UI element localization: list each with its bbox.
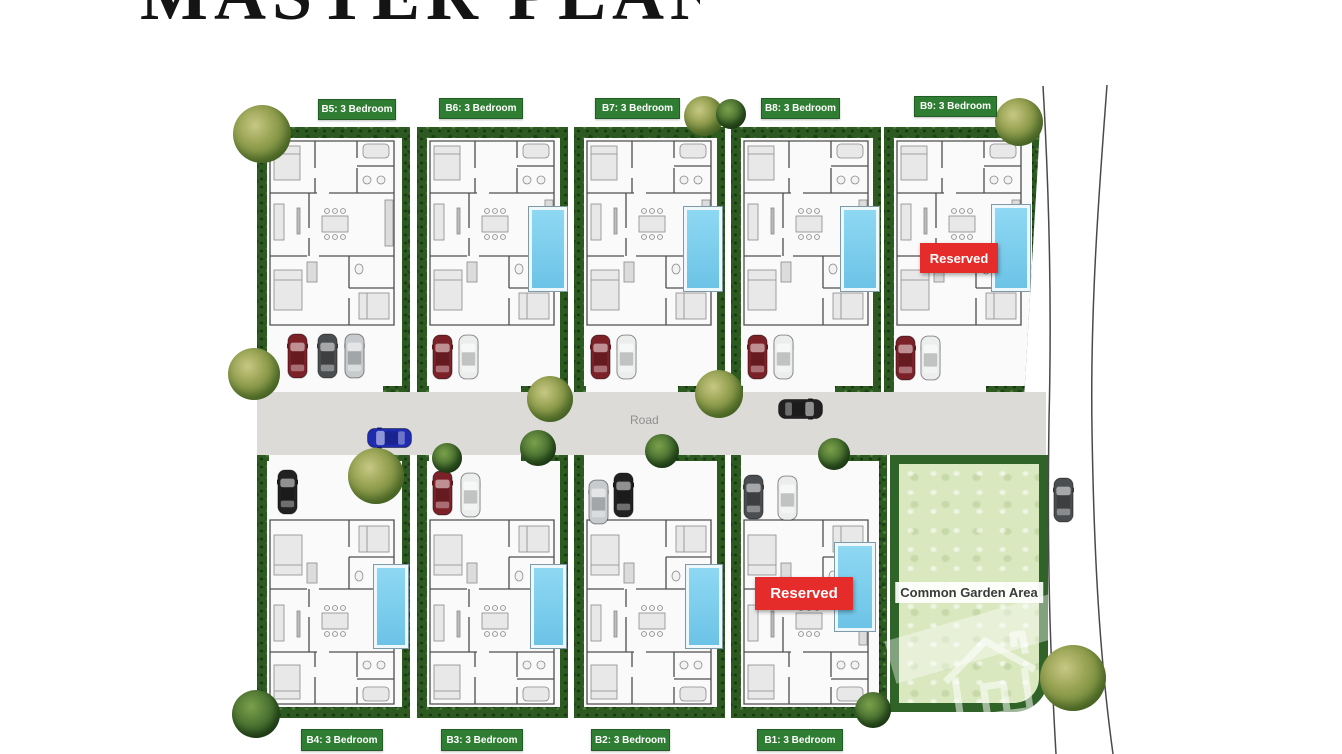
parked-car-red bbox=[432, 468, 453, 518]
parked-car-white bbox=[616, 332, 637, 382]
parked-car-gray bbox=[743, 472, 764, 522]
plot-b3 bbox=[417, 455, 568, 718]
side-road-car-gray bbox=[1053, 475, 1074, 525]
parked-car-white bbox=[460, 470, 481, 520]
masterplan-page: MASTER PLAN Road bbox=[0, 0, 1342, 754]
plot-b8 bbox=[731, 127, 881, 392]
tree-icon bbox=[995, 98, 1043, 146]
tree-icon bbox=[527, 376, 573, 422]
shrub-icon bbox=[232, 690, 280, 738]
swimming-pool-b2 bbox=[686, 565, 722, 648]
common-garden-label: Common Garden Area bbox=[895, 582, 1043, 603]
parked-car-gray bbox=[317, 331, 338, 381]
shrub-icon bbox=[818, 438, 850, 470]
page-title-clip: MASTER PLAN bbox=[140, 0, 700, 31]
shrub-icon bbox=[855, 692, 891, 728]
parked-car-silver bbox=[588, 477, 609, 527]
shrub-icon bbox=[645, 434, 679, 468]
plot-b6 bbox=[417, 127, 568, 392]
tree-icon bbox=[228, 348, 280, 400]
tree-icon bbox=[233, 105, 291, 163]
unit-label-b3: B3: 3 Bedroom bbox=[441, 729, 523, 751]
parked-car-red bbox=[432, 332, 453, 382]
parked-car-black bbox=[277, 467, 298, 517]
unit-label-b8: B8: 3 Bedroom bbox=[761, 98, 840, 119]
shrub-icon bbox=[520, 430, 556, 466]
shrub-icon bbox=[716, 99, 746, 129]
road-car-black bbox=[776, 399, 826, 420]
unit-label-b1: B1: 3 Bedroom bbox=[757, 729, 843, 751]
plot-b5 bbox=[257, 127, 410, 392]
parked-car-red bbox=[590, 332, 611, 382]
road-car-blue bbox=[365, 428, 415, 449]
page-title: MASTER PLAN bbox=[140, 0, 700, 31]
parked-car-silver bbox=[344, 331, 365, 381]
tree-icon bbox=[695, 370, 743, 418]
unit-label-b7: B7: 3 Bedroom bbox=[595, 98, 680, 119]
parked-car-black bbox=[613, 470, 634, 520]
unit-label-b5: B5: 3 Bedroom bbox=[318, 99, 396, 120]
swimming-pool-b8 bbox=[841, 207, 879, 291]
swimming-pool-b4 bbox=[374, 565, 408, 648]
tree-icon bbox=[348, 448, 404, 504]
parked-car-white bbox=[773, 332, 794, 382]
swimming-pool-b6 bbox=[529, 207, 567, 291]
unit-label-b2: B2: 3 Bedroom bbox=[591, 729, 670, 751]
parked-car-red bbox=[287, 331, 308, 381]
parked-car-white bbox=[777, 473, 798, 523]
unit-label-b6: B6: 3 Bedroom bbox=[439, 98, 523, 119]
tree-icon bbox=[1040, 645, 1106, 711]
road-label: Road bbox=[630, 413, 659, 427]
swimming-pool-b7 bbox=[684, 207, 722, 291]
unit-label-b9: B9: 3 Bedroom bbox=[914, 96, 997, 117]
parked-car-red bbox=[895, 333, 916, 383]
parked-car-white bbox=[920, 333, 941, 383]
plot-b7 bbox=[574, 127, 725, 392]
floorplan-b5 bbox=[267, 138, 397, 328]
swimming-pool-b3 bbox=[531, 565, 566, 648]
unit-label-b4: B4: 3 Bedroom bbox=[301, 729, 383, 751]
parked-car-white bbox=[458, 332, 479, 382]
reserved-badge-b9: Reserved bbox=[920, 243, 998, 273]
shrub-icon bbox=[432, 443, 462, 473]
reserved-badge-b1: Reserved bbox=[755, 577, 853, 610]
plot-b2 bbox=[574, 455, 725, 718]
parked-car-red bbox=[747, 332, 768, 382]
